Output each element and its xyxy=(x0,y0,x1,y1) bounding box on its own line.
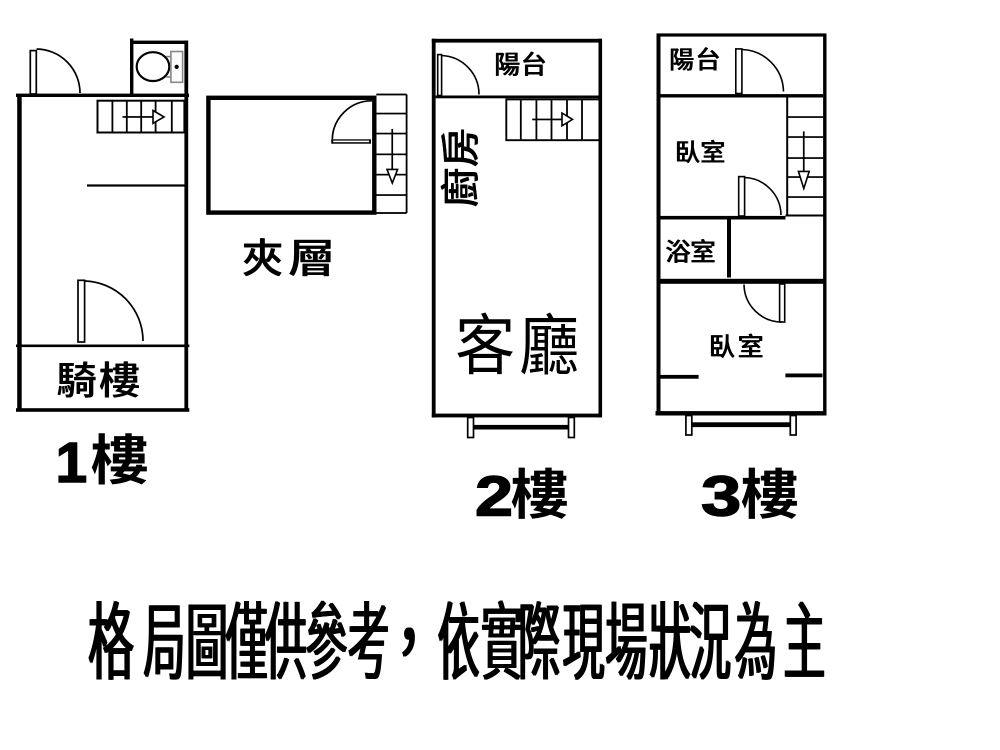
svg-text:2: 2 xyxy=(475,465,513,528)
svg-text:1: 1 xyxy=(56,431,88,495)
svg-text:3: 3 xyxy=(701,464,741,528)
